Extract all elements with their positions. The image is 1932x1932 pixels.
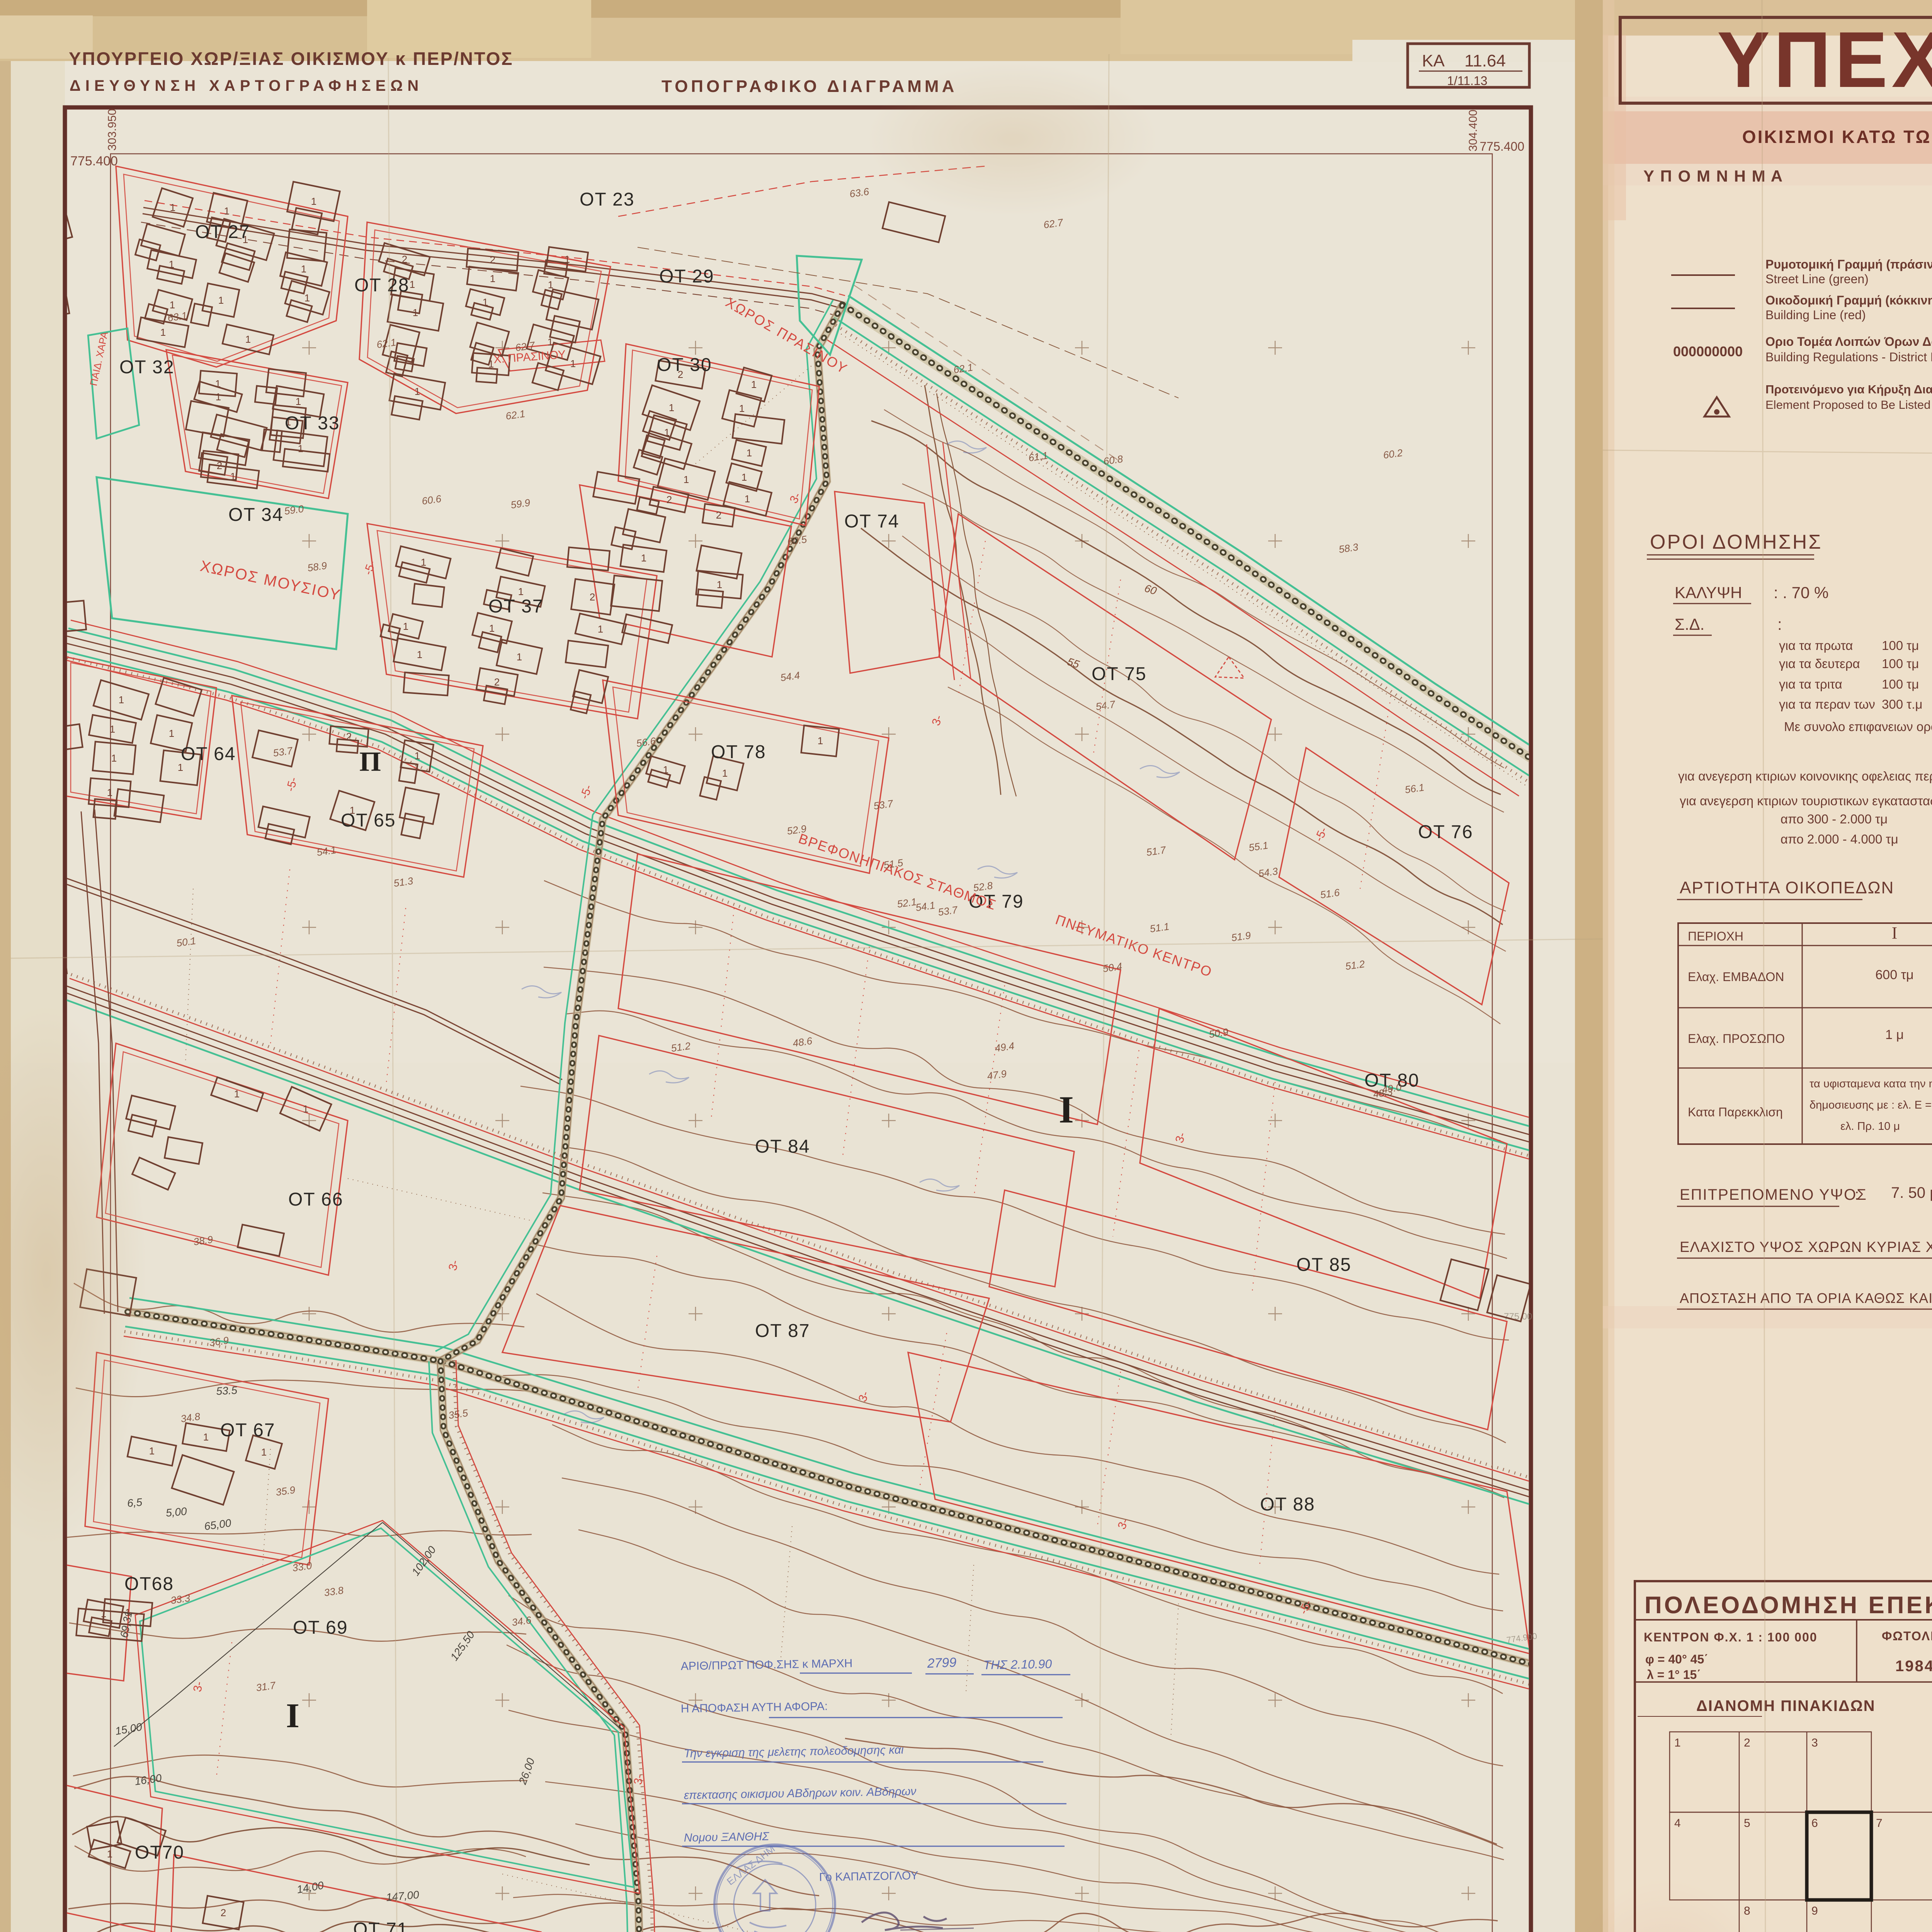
svg-text:για ανεγερση κτιριων κοινονικη: για ανεγερση κτιριων κοινονικης οφελειας… [1678, 769, 1932, 783]
svg-text:1: 1 [751, 379, 757, 390]
svg-text:ΟΤ 71: ΟΤ 71 [353, 1919, 408, 1932]
svg-text:6: 6 [1811, 1817, 1818, 1830]
svg-text:ΟΤ 76: ΟΤ 76 [1418, 822, 1473, 842]
svg-text:ΔΙΑΝΟΜΗ ΠΙΝΑΚΙΔΩΝ: ΔΙΑΝΟΜΗ ΠΙΝΑΚΙΔΩΝ [1696, 1697, 1876, 1714]
svg-text:Building Line (red): Building Line (red) [1765, 308, 1866, 322]
svg-text:2: 2 [217, 460, 222, 471]
svg-text:απο 300 - 2.000 τμ: απο 300 - 2.000 τμ [1781, 812, 1888, 826]
svg-text:1: 1 [518, 586, 524, 597]
svg-text:000000000: 000000000 [1673, 344, 1743, 359]
svg-text:11.64: 11.64 [1464, 51, 1506, 70]
svg-text:ΟΤ 69: ΟΤ 69 [293, 1617, 348, 1638]
svg-text:1: 1 [304, 292, 310, 304]
svg-text:1: 1 [169, 728, 174, 739]
svg-text:1: 1 [245, 333, 251, 345]
svg-text:ΟΤ 75: ΟΤ 75 [1092, 664, 1147, 684]
svg-text:ΟΤ 27: ΟΤ 27 [195, 222, 250, 242]
svg-text:1: 1 [311, 196, 316, 207]
svg-text:1: 1 [548, 279, 553, 291]
svg-text:1: 1 [170, 299, 175, 311]
svg-text:1: 1 [747, 447, 752, 459]
svg-text:2: 2 [590, 591, 595, 603]
svg-text:9: 9 [1811, 1905, 1818, 1917]
svg-text:2: 2 [1744, 1736, 1750, 1749]
svg-text:φ = 40° 45΄: φ = 40° 45΄ [1645, 1652, 1708, 1666]
svg-text:ΟΤ 28: ΟΤ 28 [354, 275, 410, 296]
svg-text:2: 2 [221, 1907, 226, 1918]
svg-text:1: 1 [489, 622, 495, 634]
svg-text:775.400: 775.400 [1480, 139, 1524, 153]
svg-text:για τα τριτα: για τα τριτα [1779, 677, 1842, 691]
svg-text::: : [1855, 1186, 1859, 1203]
svg-text:1: 1 [301, 263, 306, 275]
svg-text:1: 1 [303, 1103, 308, 1115]
svg-text:2: 2 [402, 253, 407, 265]
svg-text:ΟΤ 37: ΟΤ 37 [488, 596, 544, 617]
svg-text:ΚΑΛΥΨΗ: ΚΑΛΥΨΗ [1675, 583, 1742, 602]
svg-text:ΤΗΣ 2.10.90: ΤΗΣ 2.10.90 [983, 1657, 1052, 1672]
svg-text:ΟΤ 88: ΟΤ 88 [1260, 1494, 1315, 1515]
svg-text:1: 1 [298, 443, 303, 454]
svg-text:Ρυμοτομική Γραμμή (πράσινη): Ρυμοτομική Γραμμή (πράσινη) [1765, 257, 1932, 271]
svg-text:1: 1 [483, 296, 488, 308]
svg-text:4: 4 [1674, 1817, 1681, 1830]
svg-text:1: 1 [421, 556, 426, 568]
svg-text:ΠΟΛΕΟΔΟΜΗΣΗ ΕΠΕΚΤΑΣΗ: ΠΟΛΕΟΔΟΜΗΣΗ ΕΠΕΚΤΑΣΗ [1645, 1592, 1932, 1619]
svg-text:1: 1 [641, 552, 646, 564]
svg-text:100 τμ: 100 τμ [1882, 656, 1919, 671]
svg-text:1: 1 [261, 1446, 267, 1458]
svg-text:για τα πρωτα: για τα πρωτα [1779, 638, 1853, 653]
svg-text:3: 3 [1811, 1736, 1818, 1749]
svg-text:Οριο Τομέα Λοιπών Όρων Δόμηση: Οριο Τομέα Λοιπών Όρων Δόμησης [1765, 335, 1932, 349]
svg-text:1: 1 [417, 649, 422, 660]
svg-text:7. 50 μ + 2. 00 μ: 7. 50 μ + 2. 00 μ [1891, 1184, 1932, 1201]
svg-text:1: 1 [415, 750, 420, 762]
svg-text:1: 1 [110, 723, 115, 735]
svg-text:Π: Π [359, 746, 381, 777]
svg-text:ΟΡΟΙ ΔΟΜΗΣΗΣ: ΟΡΟΙ ΔΟΜΗΣΗΣ [1650, 531, 1822, 553]
svg-text:Ελαχ. ΕΜΒΑΔΟΝ: Ελαχ. ΕΜΒΑΔΟΝ [1688, 970, 1784, 984]
svg-text:Οικοδομική Γραμμή (κόκκινη): Οικοδομική Γραμμή (κόκκινη) [1765, 293, 1932, 307]
svg-text:λ = 1° 15΄: λ = 1° 15΄ [1647, 1668, 1701, 1682]
svg-text:1: 1 [410, 279, 415, 290]
svg-text:ΟΤ 34: ΟΤ 34 [228, 505, 284, 525]
svg-text:1: 1 [663, 764, 668, 776]
svg-text:6,5: 6,5 [127, 1496, 143, 1509]
svg-text:1: 1 [234, 1088, 240, 1100]
svg-text:I: I [286, 1697, 299, 1735]
svg-text:600 τμ: 600 τμ [1875, 968, 1913, 982]
svg-text:ΟΤ 74: ΟΤ 74 [844, 511, 900, 532]
svg-text:1: 1 [403, 621, 408, 632]
svg-text:απο 2.000 - 4.000 τμ: απο 2.000 - 4.000 τμ [1781, 832, 1898, 846]
svg-text:ΟΤ 65: ΟΤ 65 [341, 810, 396, 831]
svg-text:1/11.13: 1/11.13 [1447, 74, 1487, 88]
svg-text:Ι: Ι [1892, 923, 1898, 942]
svg-text:100 τμ: 100 τμ [1882, 677, 1919, 691]
svg-text:I: I [1059, 1088, 1074, 1131]
svg-text:1: 1 [160, 327, 166, 338]
svg-text:ΟΤ 87: ΟΤ 87 [755, 1321, 810, 1341]
svg-text:1: 1 [169, 259, 174, 270]
svg-text:1984: 1984 [1895, 1658, 1932, 1675]
svg-text:1: 1 [415, 386, 420, 397]
svg-text:Street Line (green): Street Line (green) [1765, 272, 1869, 286]
svg-text:2: 2 [346, 731, 352, 742]
svg-text:1: 1 [215, 378, 221, 389]
svg-text:Προτεινόμενο για Κήρυξη Διατηρ: Προτεινόμενο για Κήρυξη Διατηρητέο Αρχιτ… [1765, 383, 1932, 396]
svg-text:1: 1 [490, 273, 495, 284]
svg-text:303.950: 303.950 [106, 109, 119, 151]
svg-text:ΟΤ 33: ΟΤ 33 [285, 413, 340, 434]
svg-text:1: 1 [203, 1431, 209, 1443]
svg-text:για τα περαν των: για τα περαν των [1779, 697, 1875, 711]
svg-text:1 μ: 1 μ [1885, 1027, 1904, 1042]
svg-text:1: 1 [218, 294, 224, 306]
svg-text:ΟΤ 29: ΟΤ 29 [659, 266, 714, 287]
svg-text:ΟΤ 85: ΟΤ 85 [1296, 1255, 1352, 1275]
svg-text:3-: 3- [191, 1680, 205, 1693]
svg-text:ΟΤ 32: ΟΤ 32 [119, 357, 175, 378]
svg-text:Γο ΚΑΠΑΤΖΟΓΛΟΥ: Γο ΚΑΠΑΤΖΟΓΛΟΥ [819, 1869, 918, 1884]
svg-text:Σ.Δ.: Σ.Δ. [1675, 615, 1704, 633]
svg-text:100 τμ: 100 τμ [1882, 638, 1919, 653]
svg-text:ΚΑ: ΚΑ [1422, 51, 1445, 70]
svg-text:ΟΤ70: ΟΤ70 [135, 1842, 184, 1863]
svg-text:ελ. Πρ. 10 μ: ελ. Πρ. 10 μ [1840, 1120, 1900, 1133]
svg-text:1: 1 [818, 735, 823, 747]
svg-text:1: 1 [745, 493, 750, 505]
svg-text:ΑΡΤΙΟΤΗΤΑ ΟΙΚΟΠΕΔΩΝ: ΑΡΤΙΟΤΗΤΑ ΟΙΚΟΠΕΔΩΝ [1680, 878, 1894, 897]
svg-text:Με συνολο επιφανειων οροφων μι: Με συνολο επιφανειων οροφων μιχροτερο τω… [1784, 719, 1932, 734]
svg-text:5: 5 [1744, 1817, 1750, 1830]
svg-text:ΕΠΙΤΡΕΠΟΜΕΝΟ ΥΨΟΣ: ΕΠΙΤΡΕΠΟΜΕΝΟ ΥΨΟΣ [1680, 1186, 1867, 1203]
svg-text:ΟΤ 67: ΟΤ 67 [220, 1420, 276, 1440]
svg-text:1: 1 [149, 1445, 155, 1457]
svg-text:1: 1 [664, 427, 670, 438]
svg-text:ΔΙΕΥΘΥΝΣΗ ΧΑΡΤΟΓΡΑΦΗΣΕΩΝ: ΔΙΕΥΘΥΝΣΗ ΧΑΡΤΟΓΡΑΦΗΣΕΩΝ [70, 77, 423, 94]
svg-text:304.400: 304.400 [1467, 110, 1480, 151]
svg-text:7: 7 [1876, 1817, 1883, 1830]
svg-text:8: 8 [1744, 1905, 1750, 1917]
svg-text:ΟΤ 23: ΟΤ 23 [580, 189, 635, 210]
svg-text:ΟΙΚΙΣΜΟΙ ΚΑΤΩ ΤΩΝ 2000 ΚΑΤ: ΟΙΚΙΣΜΟΙ ΚΑΤΩ ΤΩΝ 2000 ΚΑΤΟΙΚΩΝ [1742, 127, 1932, 147]
svg-text:775.400: 775.400 [70, 154, 118, 168]
svg-text:1: 1 [717, 579, 722, 590]
svg-text:Ελαχ. ΠΡΟΣΩΠΟ: Ελαχ. ΠΡΟΣΩΠΟ [1688, 1032, 1785, 1046]
svg-text:1: 1 [669, 402, 674, 413]
svg-text:1: 1 [413, 307, 418, 318]
svg-text:53.5: 53.5 [216, 1384, 238, 1397]
svg-text:ΦΩΤΟΛΗΨΙΑ: ΦΩΤΟΛΗΨΙΑ [1882, 1629, 1932, 1643]
svg-text:1: 1 [296, 396, 301, 407]
svg-text:ΟΤ 84: ΟΤ 84 [755, 1136, 810, 1157]
svg-text:2799: 2799 [927, 1655, 957, 1671]
svg-text:2: 2 [716, 509, 721, 521]
svg-text::: : [1777, 615, 1782, 633]
svg-text:1: 1 [224, 205, 230, 217]
svg-text:1: 1 [598, 623, 603, 635]
svg-text:Κατα Παρεκκλιση: Κατα Παρεκκλιση [1688, 1105, 1783, 1119]
svg-text:ΥΠΕΧΩΔΕ: ΥΠΕΧΩΔΕ [1717, 15, 1932, 104]
svg-text:ΟΤ 78: ΟΤ 78 [711, 742, 766, 762]
svg-text:ΥΠΟΥΡΓΕΙΟ ΧΩΡ/ΞΙΑΣ ΟΙΚΙΣΜΟΥ: ΥΠΟΥΡΓΕΙΟ ΧΩΡ/ΞΙΑΣ ΟΙΚΙΣΜΟΥ κ ΠΕΡ/ΝΤΟΣ [69, 48, 514, 69]
svg-text:ΚΕΝΤΡΟΝ Φ.Χ. 1 : 100 00: ΚΕΝΤΡΟΝ Φ.Χ. 1 : 100 000 [1644, 1630, 1818, 1644]
svg-text:δημοσιευσης με : ελ. Ε = 300: δημοσιευσης με : ελ. Ε = 300 μ [1810, 1099, 1932, 1111]
svg-text:1: 1 [565, 253, 570, 265]
svg-text:τα υφισταμενα κατα την ημερα: τα υφισταμενα κατα την ημερα [1810, 1078, 1932, 1090]
svg-text:1: 1 [684, 474, 689, 485]
svg-text:2: 2 [490, 254, 495, 265]
svg-text:1: 1 [101, 1608, 106, 1619]
svg-text:1: 1 [111, 752, 117, 764]
svg-text:1: 1 [722, 767, 728, 779]
svg-text:1: 1 [216, 391, 221, 403]
svg-text:5,00: 5,00 [165, 1505, 187, 1519]
svg-text:Η ΑΠΟΦΑΣΗ ΑΥΤΗ ΑΦΟΡΑ:: Η ΑΠΟΦΑΣΗ ΑΥΤΗ ΑΦΟΡΑ: [681, 1700, 828, 1715]
svg-text:1: 1 [742, 471, 747, 483]
svg-text:1: 1 [548, 336, 553, 348]
svg-text:Νομου ΞΑΝΘΗΣ: Νομου ΞΑΝΘΗΣ [684, 1830, 770, 1844]
svg-text:1: 1 [107, 787, 112, 798]
svg-text:1: 1 [1674, 1736, 1681, 1749]
svg-text:2: 2 [494, 676, 500, 688]
svg-text:1: 1 [170, 202, 175, 213]
svg-text:ΟΤ 66: ΟΤ 66 [288, 1189, 344, 1210]
svg-text:: . 70 %: : . 70 % [1774, 583, 1828, 602]
svg-text:1: 1 [739, 403, 745, 414]
svg-text:ΟΤ68: ΟΤ68 [124, 1574, 174, 1594]
svg-text:1: 1 [570, 358, 576, 369]
svg-text:1: 1 [230, 471, 236, 482]
svg-text:ΠΕΡΙΟΧΗ: ΠΕΡΙΟΧΗ [1688, 929, 1743, 943]
svg-text:3-: 3- [631, 1773, 646, 1786]
svg-text:300 τ.μ: 300 τ.μ [1882, 697, 1922, 711]
svg-text:2: 2 [667, 494, 672, 505]
svg-text:1: 1 [119, 694, 124, 706]
svg-text:ΕΛΑΧΙΣΤΟ ΥΨΟΣ ΧΩΡΩΝ ΚΥΡΙΑΣ: ΕΛΑΧΙΣΤΟ ΥΨΟΣ ΧΩΡΩΝ ΚΥΡΙΑΣ ΧΡΗΣΗΣ [1680, 1239, 1932, 1255]
svg-text:ΟΤ 30: ΟΤ 30 [657, 355, 712, 375]
svg-text:1: 1 [488, 358, 494, 370]
svg-text:για τα δευτερα: για τα δευτερα [1779, 656, 1860, 671]
svg-text:ΟΤ 64: ΟΤ 64 [181, 744, 236, 764]
svg-text:1: 1 [517, 651, 522, 663]
svg-text:Element Proposed to Be Listed: Element Proposed to Be Listed for its Ar… [1765, 398, 1932, 412]
svg-text:Building Regulations - Dist: Building Regulations - District Boundary [1765, 350, 1932, 364]
svg-text:ΑΠΟΣΤΑΣΗ ΑΠΟ ΤΑ ΟΡΙΑ ΚΑΘΩΣ ΚΑΙ: ΑΠΟΣΤΑΣΗ ΑΠΟ ΤΑ ΟΡΙΑ ΚΑΘΩΣ ΚΑΙ ΜΕΤΑΞΥ ΚΤ… [1680, 1290, 1932, 1306]
svg-text:1: 1 [107, 1848, 112, 1860]
svg-text:για ανεγερση κτιριων τουριστικ: για ανεγερση κτιριων τουριστικων εγκατασ… [1680, 794, 1932, 808]
